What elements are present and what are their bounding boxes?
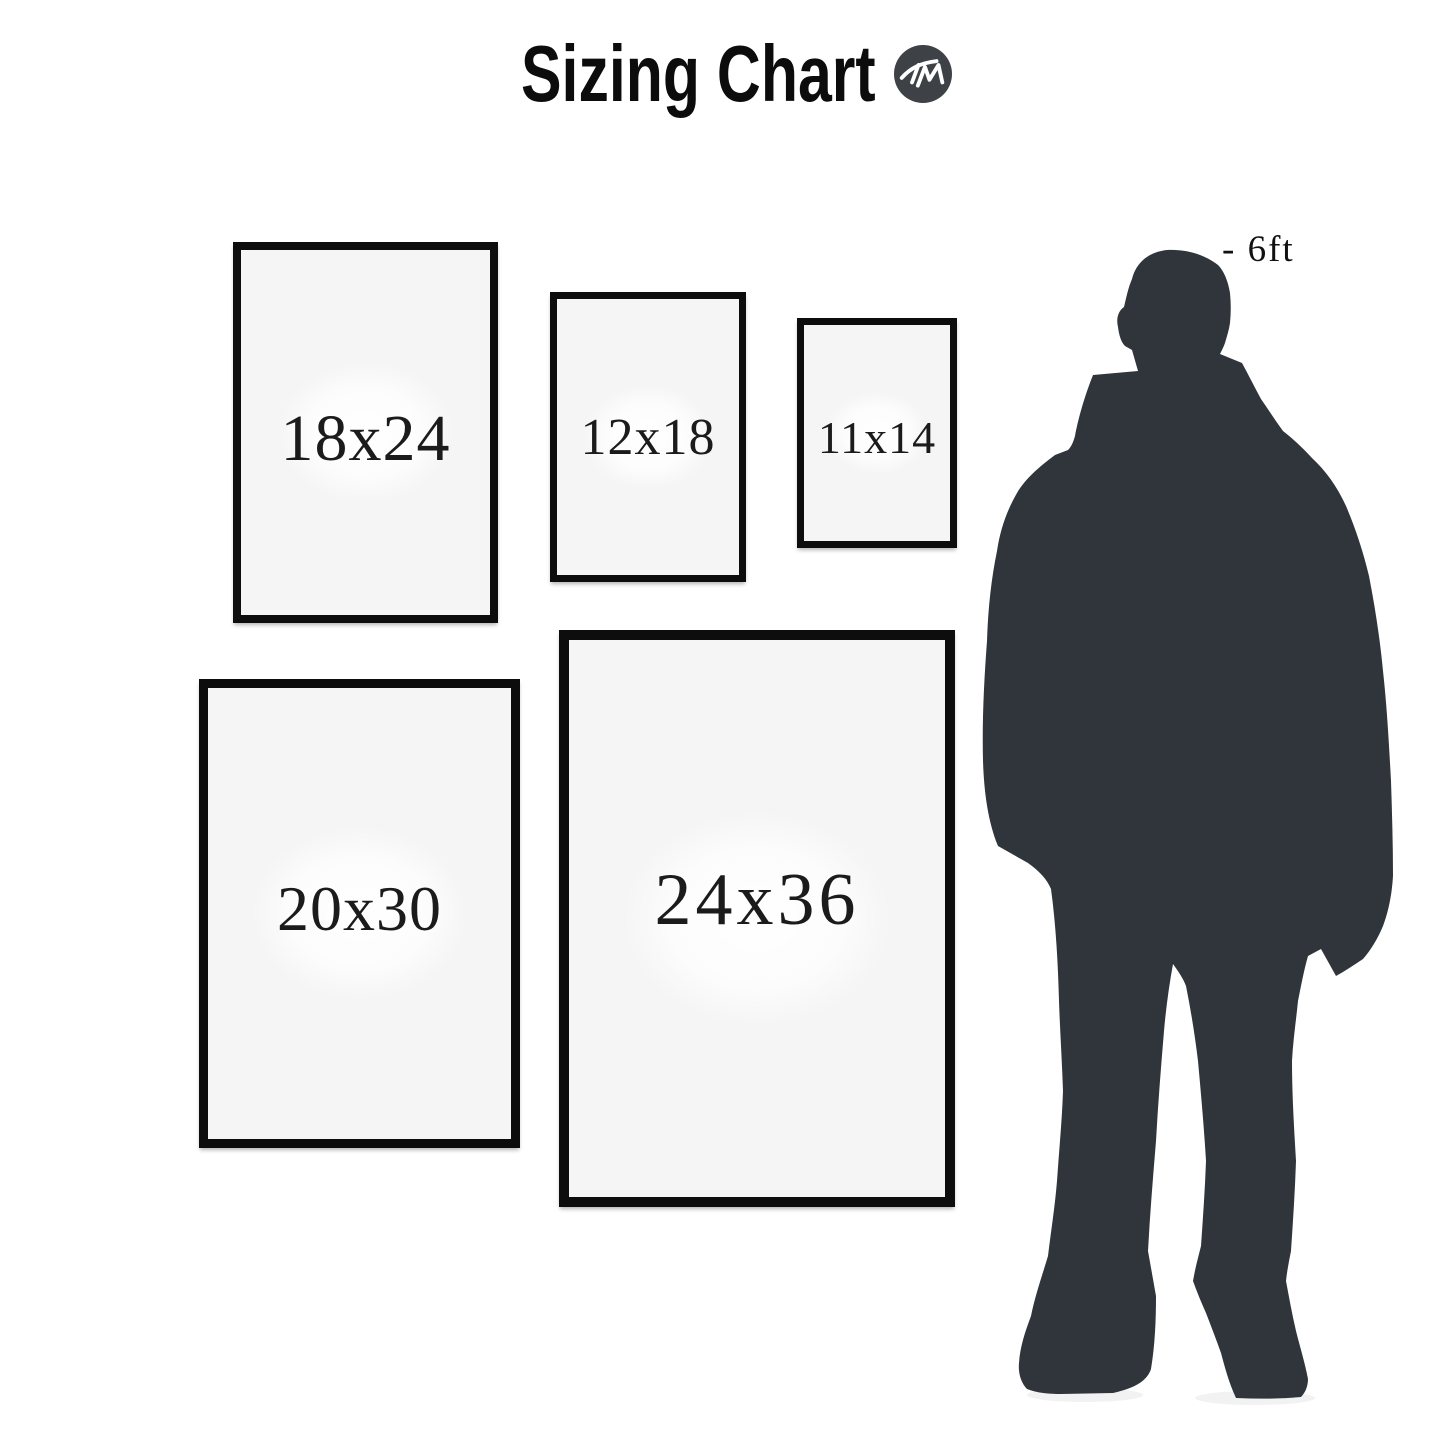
- size-label-18x24: 18x24: [281, 401, 451, 477]
- sizing-chart-graphic: Sizing Chart 18x24 12x18 11x14 20x30 24x…: [0, 0, 1445, 1445]
- size-label-11x14: 11x14: [818, 411, 936, 464]
- page-title: Sizing Chart: [521, 26, 876, 122]
- person-silhouette: [980, 243, 1400, 1405]
- size-label-24x36: 24x36: [655, 858, 860, 943]
- frame-20x30: 20x30: [199, 679, 520, 1148]
- size-label-12x18: 12x18: [581, 408, 716, 467]
- size-label-20x30: 20x30: [277, 872, 442, 946]
- frame-18x24: 18x24: [233, 242, 498, 623]
- title-row: Sizing Chart: [0, 26, 1431, 122]
- frame-11x14: 11x14: [797, 318, 957, 548]
- frame-24x36: 24x36: [559, 630, 955, 1207]
- tm-logo-icon: [894, 45, 952, 103]
- frame-12x18: 12x18: [550, 292, 746, 582]
- tm-logo: [894, 45, 952, 103]
- height-marker-label: - 6ft: [1222, 228, 1295, 271]
